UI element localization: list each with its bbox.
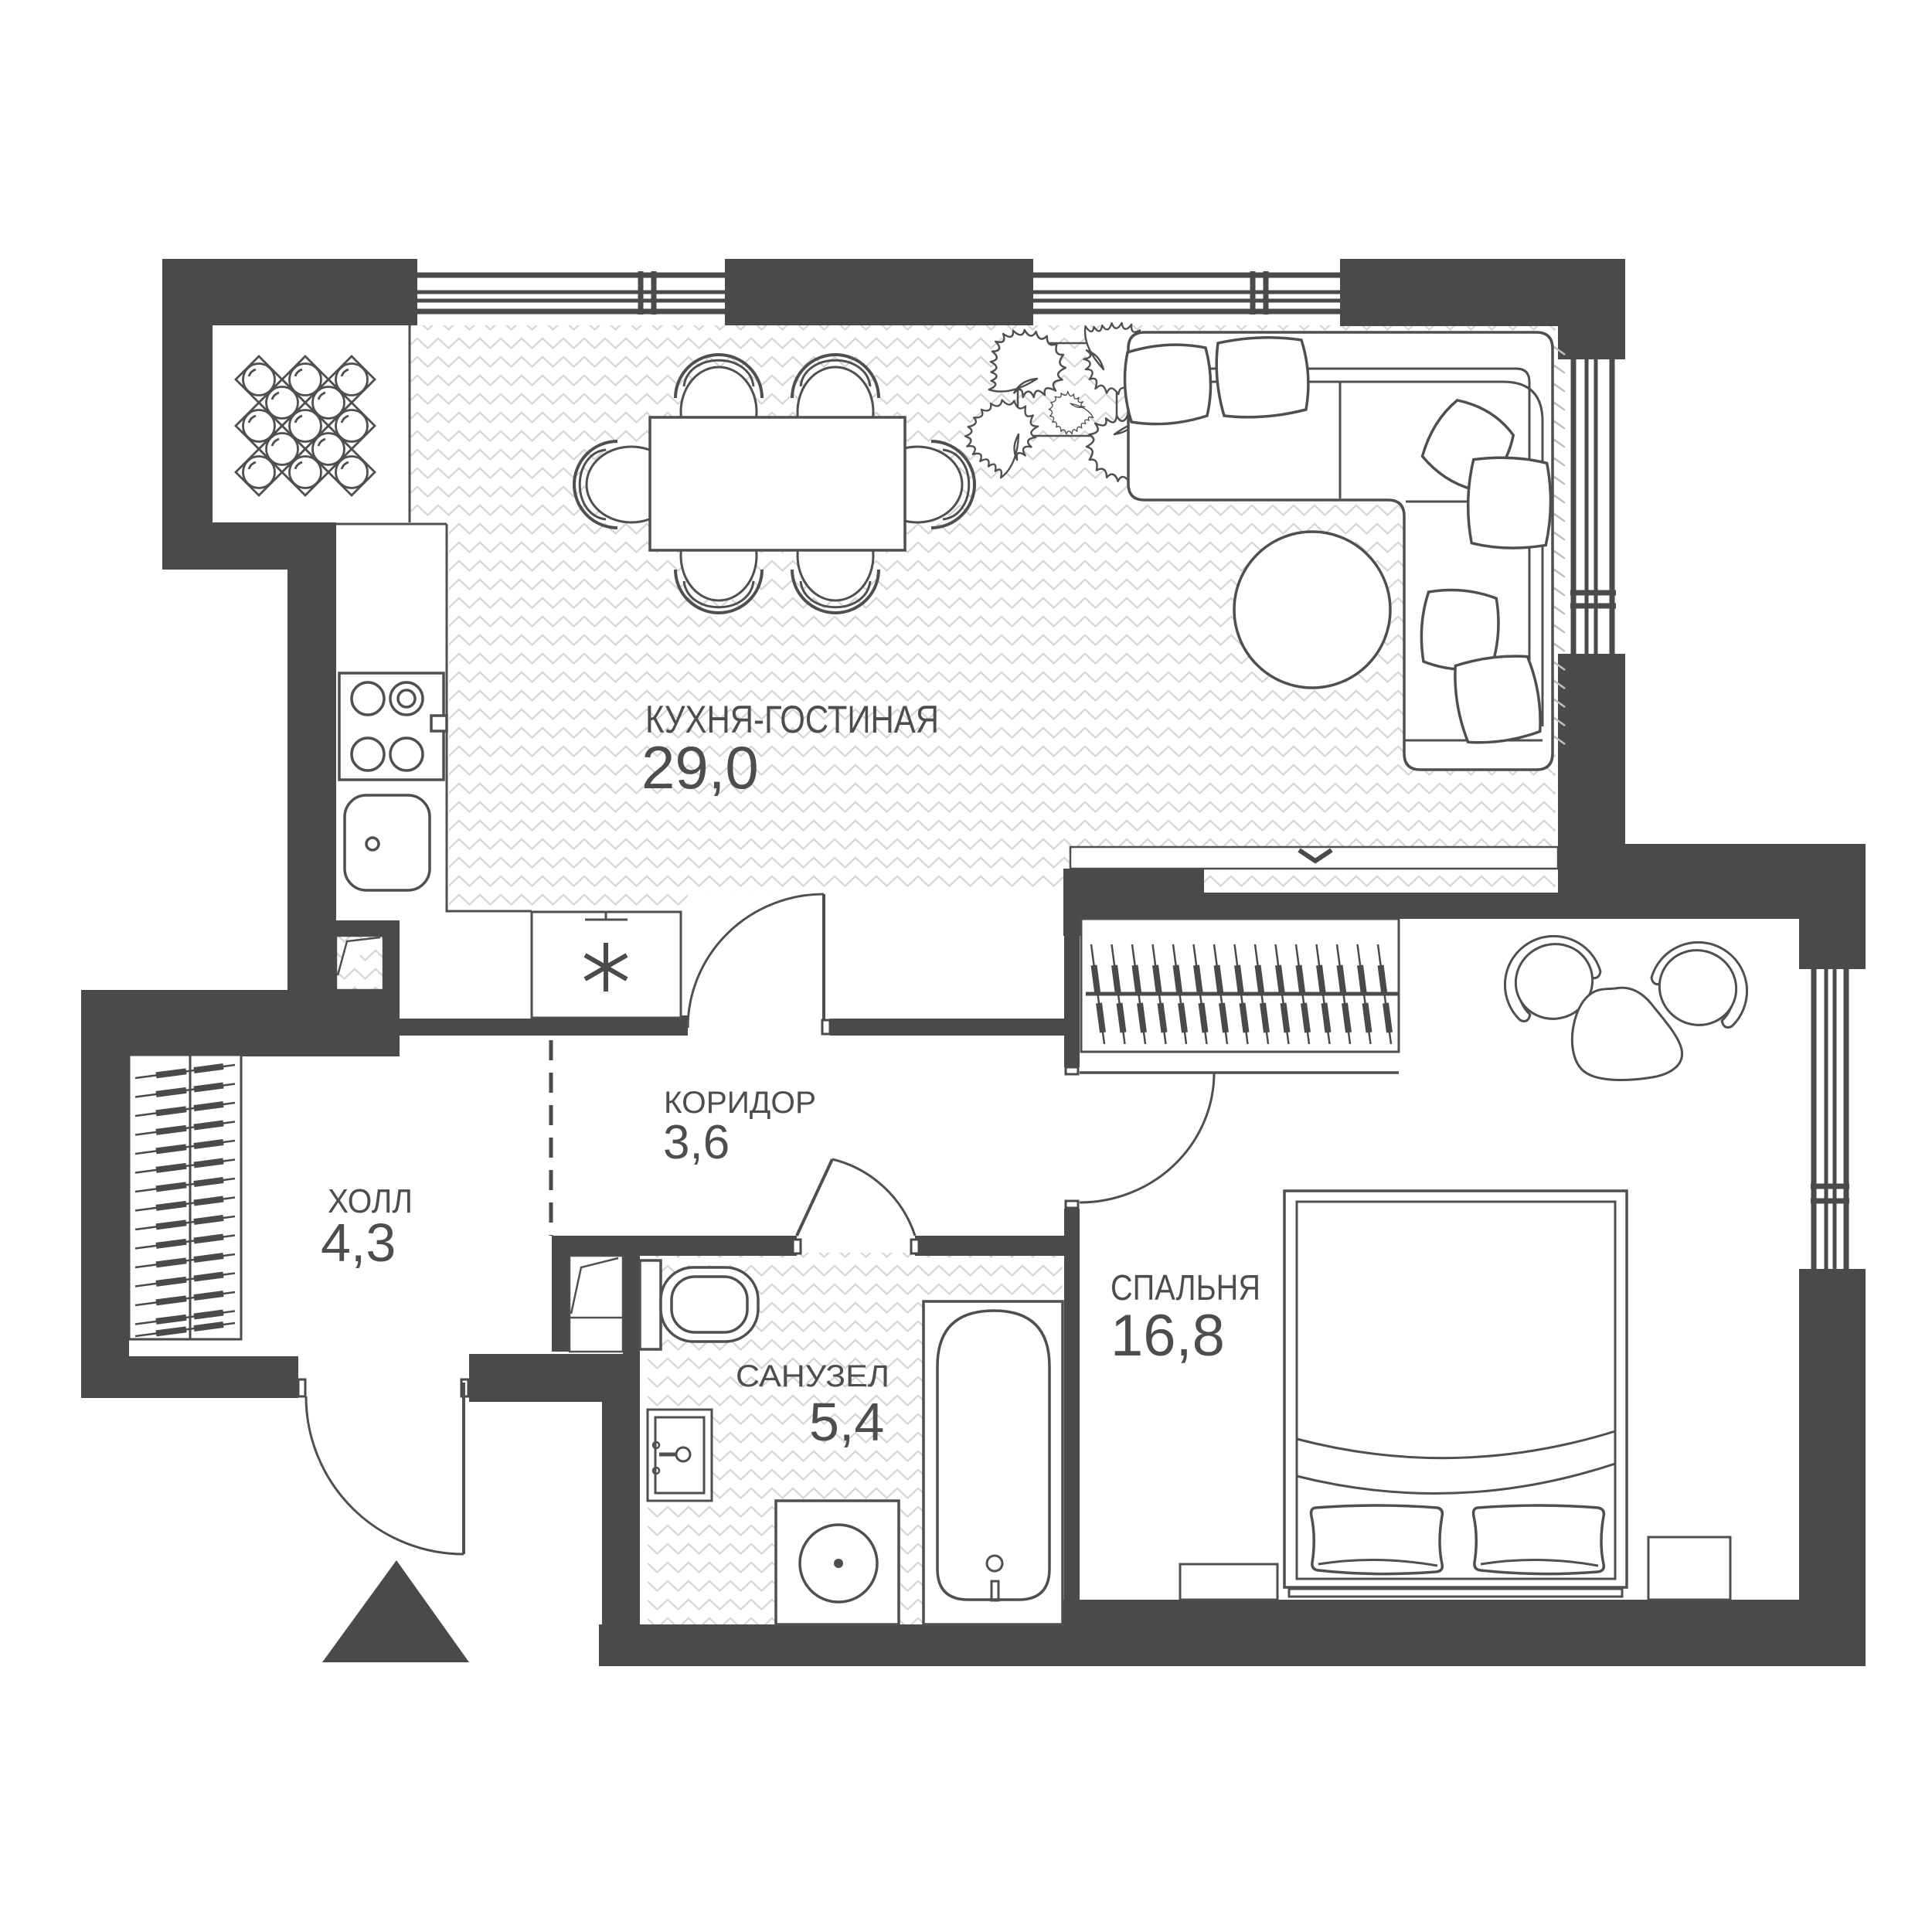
svg-text:29,0: 29,0 xyxy=(641,733,759,801)
svg-text:4,3: 4,3 xyxy=(321,1213,396,1273)
svg-text:СПАЛЬНЯ: СПАЛЬНЯ xyxy=(1111,1267,1260,1308)
svg-text:КОРИДОР: КОРИДОР xyxy=(664,1086,816,1120)
svg-text:3,6: 3,6 xyxy=(663,1116,730,1169)
svg-text:САНУЗЕЛ: САНУЗЕЛ xyxy=(736,1359,889,1393)
svg-text:5,4: 5,4 xyxy=(809,1392,884,1452)
svg-text:16,8: 16,8 xyxy=(1111,1303,1225,1369)
